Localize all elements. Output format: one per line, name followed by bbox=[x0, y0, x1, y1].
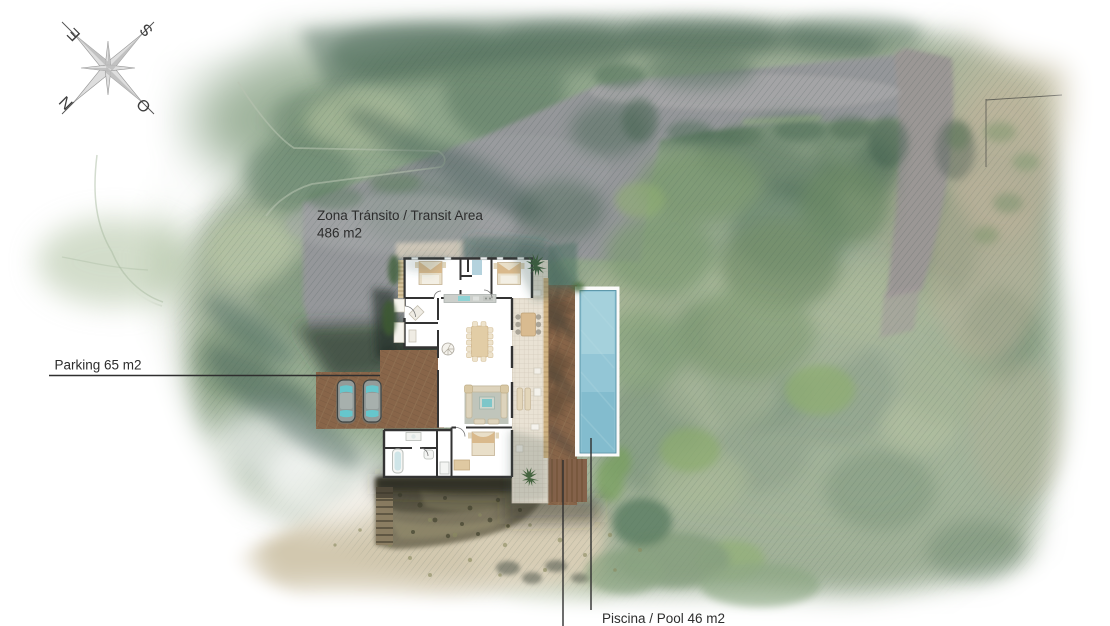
svg-text:Parking 65 m2: Parking 65 m2 bbox=[55, 358, 142, 373]
svg-text:486 m2: 486 m2 bbox=[317, 226, 362, 241]
svg-text:Piscina / Pool 46 m2: Piscina / Pool 46 m2 bbox=[602, 611, 725, 626]
svg-text:Zona Tránsito / Transit Area: Zona Tránsito / Transit Area bbox=[317, 208, 483, 223]
